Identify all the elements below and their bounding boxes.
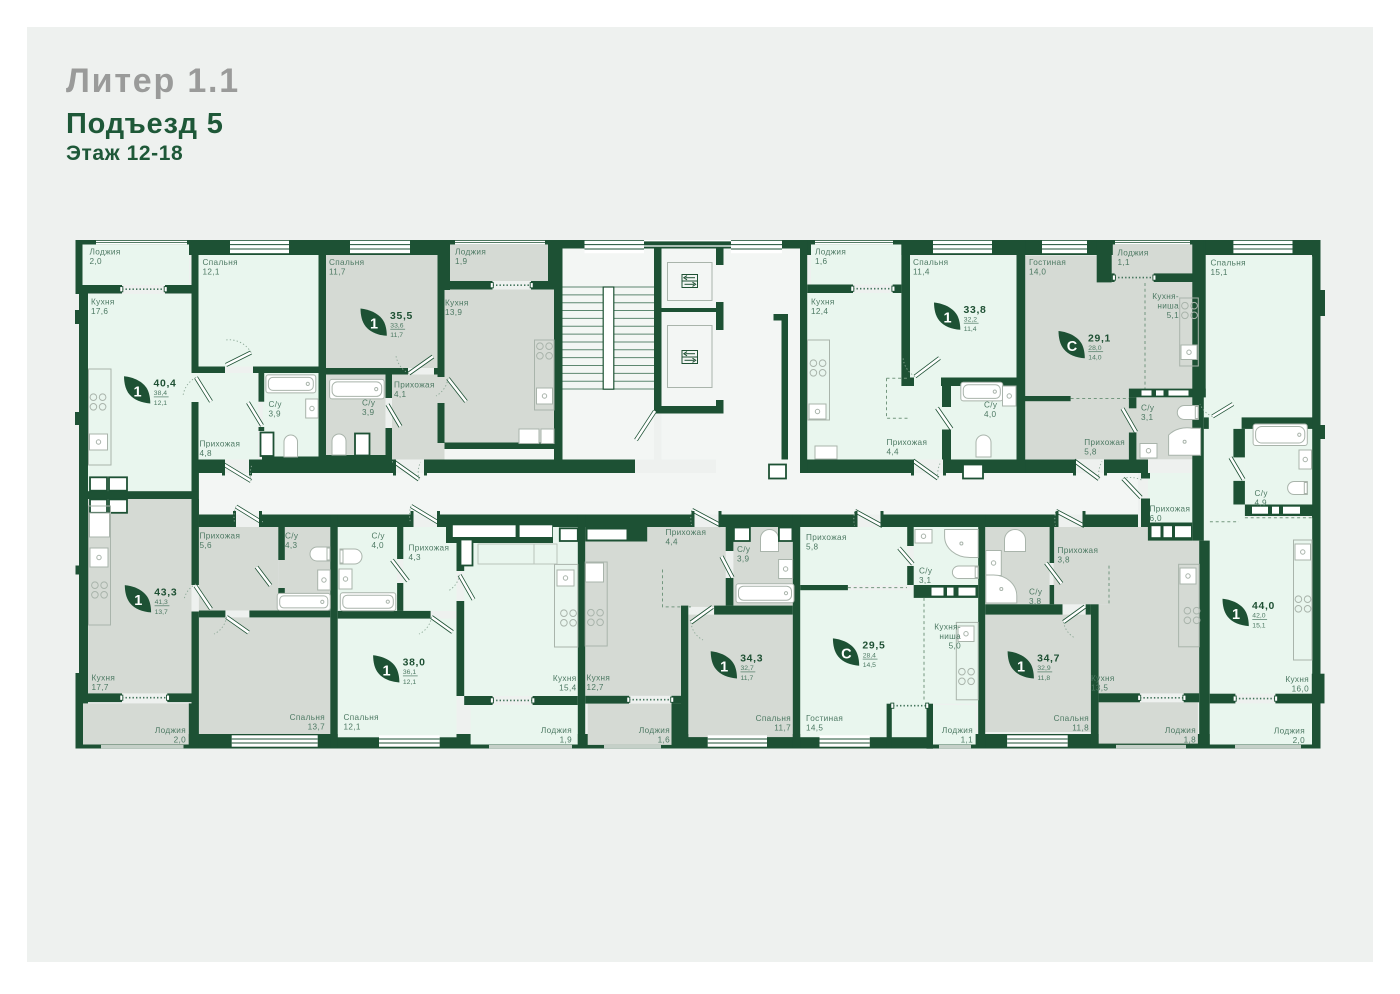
- svg-text:С/у3,8: С/у3,8: [1029, 588, 1043, 606]
- svg-text:1: 1: [133, 384, 141, 400]
- svg-text:32,2: 32,2: [964, 316, 977, 323]
- svg-text:С/у3,9: С/у3,9: [269, 400, 283, 418]
- svg-text:С/у3,9: С/у3,9: [362, 399, 376, 417]
- svg-text:С/у4,9: С/у4,9: [1255, 489, 1269, 507]
- svg-text:42,0: 42,0: [1252, 613, 1265, 620]
- svg-text:34,3: 34,3: [740, 654, 763, 665]
- svg-text:32,7: 32,7: [741, 665, 754, 672]
- svg-text:С: С: [841, 647, 852, 663]
- svg-text:Этаж 12-18: Этаж 12-18: [66, 142, 183, 165]
- svg-text:С/у4,3: С/у4,3: [285, 532, 299, 550]
- svg-text:33,8: 33,8: [964, 305, 987, 316]
- svg-text:12,1: 12,1: [154, 400, 167, 407]
- svg-text:28,4: 28,4: [863, 652, 876, 659]
- svg-text:33,6: 33,6: [390, 322, 403, 329]
- svg-text:1: 1: [1232, 607, 1240, 623]
- svg-text:С/у3,1: С/у3,1: [919, 567, 933, 585]
- svg-text:38,4: 38,4: [154, 390, 167, 397]
- svg-text:40,4: 40,4: [154, 379, 177, 390]
- svg-text:29,5: 29,5: [862, 641, 885, 652]
- svg-text:12,1: 12,1: [403, 679, 416, 686]
- svg-text:11,8: 11,8: [1037, 675, 1050, 682]
- svg-text:1: 1: [943, 311, 951, 327]
- svg-text:С/у4,0: С/у4,0: [984, 401, 998, 419]
- svg-text:14,0: 14,0: [1088, 355, 1101, 362]
- svg-text:С/у3,9: С/у3,9: [737, 545, 751, 563]
- svg-text:Литер 1.1: Литер 1.1: [66, 62, 240, 100]
- svg-text:41,3: 41,3: [155, 599, 168, 606]
- svg-text:1: 1: [370, 317, 378, 333]
- svg-text:11,4: 11,4: [964, 326, 977, 333]
- svg-text:1: 1: [1017, 659, 1025, 675]
- svg-text:28,0: 28,0: [1088, 345, 1101, 352]
- svg-text:1: 1: [383, 663, 391, 679]
- svg-text:13,7: 13,7: [155, 609, 168, 616]
- svg-text:С: С: [1067, 339, 1078, 355]
- svg-text:38,0: 38,0: [403, 658, 426, 669]
- svg-text:15,1: 15,1: [1252, 623, 1265, 630]
- svg-text:29,1: 29,1: [1088, 333, 1111, 344]
- svg-text:14,5: 14,5: [863, 662, 876, 669]
- svg-text:34,7: 34,7: [1037, 654, 1060, 665]
- svg-text:35,5: 35,5: [390, 311, 413, 322]
- svg-text:1: 1: [720, 659, 728, 675]
- svg-text:Подъезд 5: Подъезд 5: [66, 108, 224, 140]
- svg-text:1: 1: [134, 593, 142, 609]
- svg-text:С/у3,1: С/у3,1: [1141, 404, 1155, 422]
- svg-text:С/у4,0: С/у4,0: [372, 532, 386, 550]
- svg-text:43,3: 43,3: [154, 587, 177, 598]
- svg-text:11,7: 11,7: [390, 332, 403, 339]
- svg-text:11,7: 11,7: [741, 675, 754, 682]
- svg-text:36,1: 36,1: [403, 669, 416, 676]
- svg-text:44,0: 44,0: [1252, 601, 1275, 612]
- svg-text:32,9: 32,9: [1037, 665, 1050, 672]
